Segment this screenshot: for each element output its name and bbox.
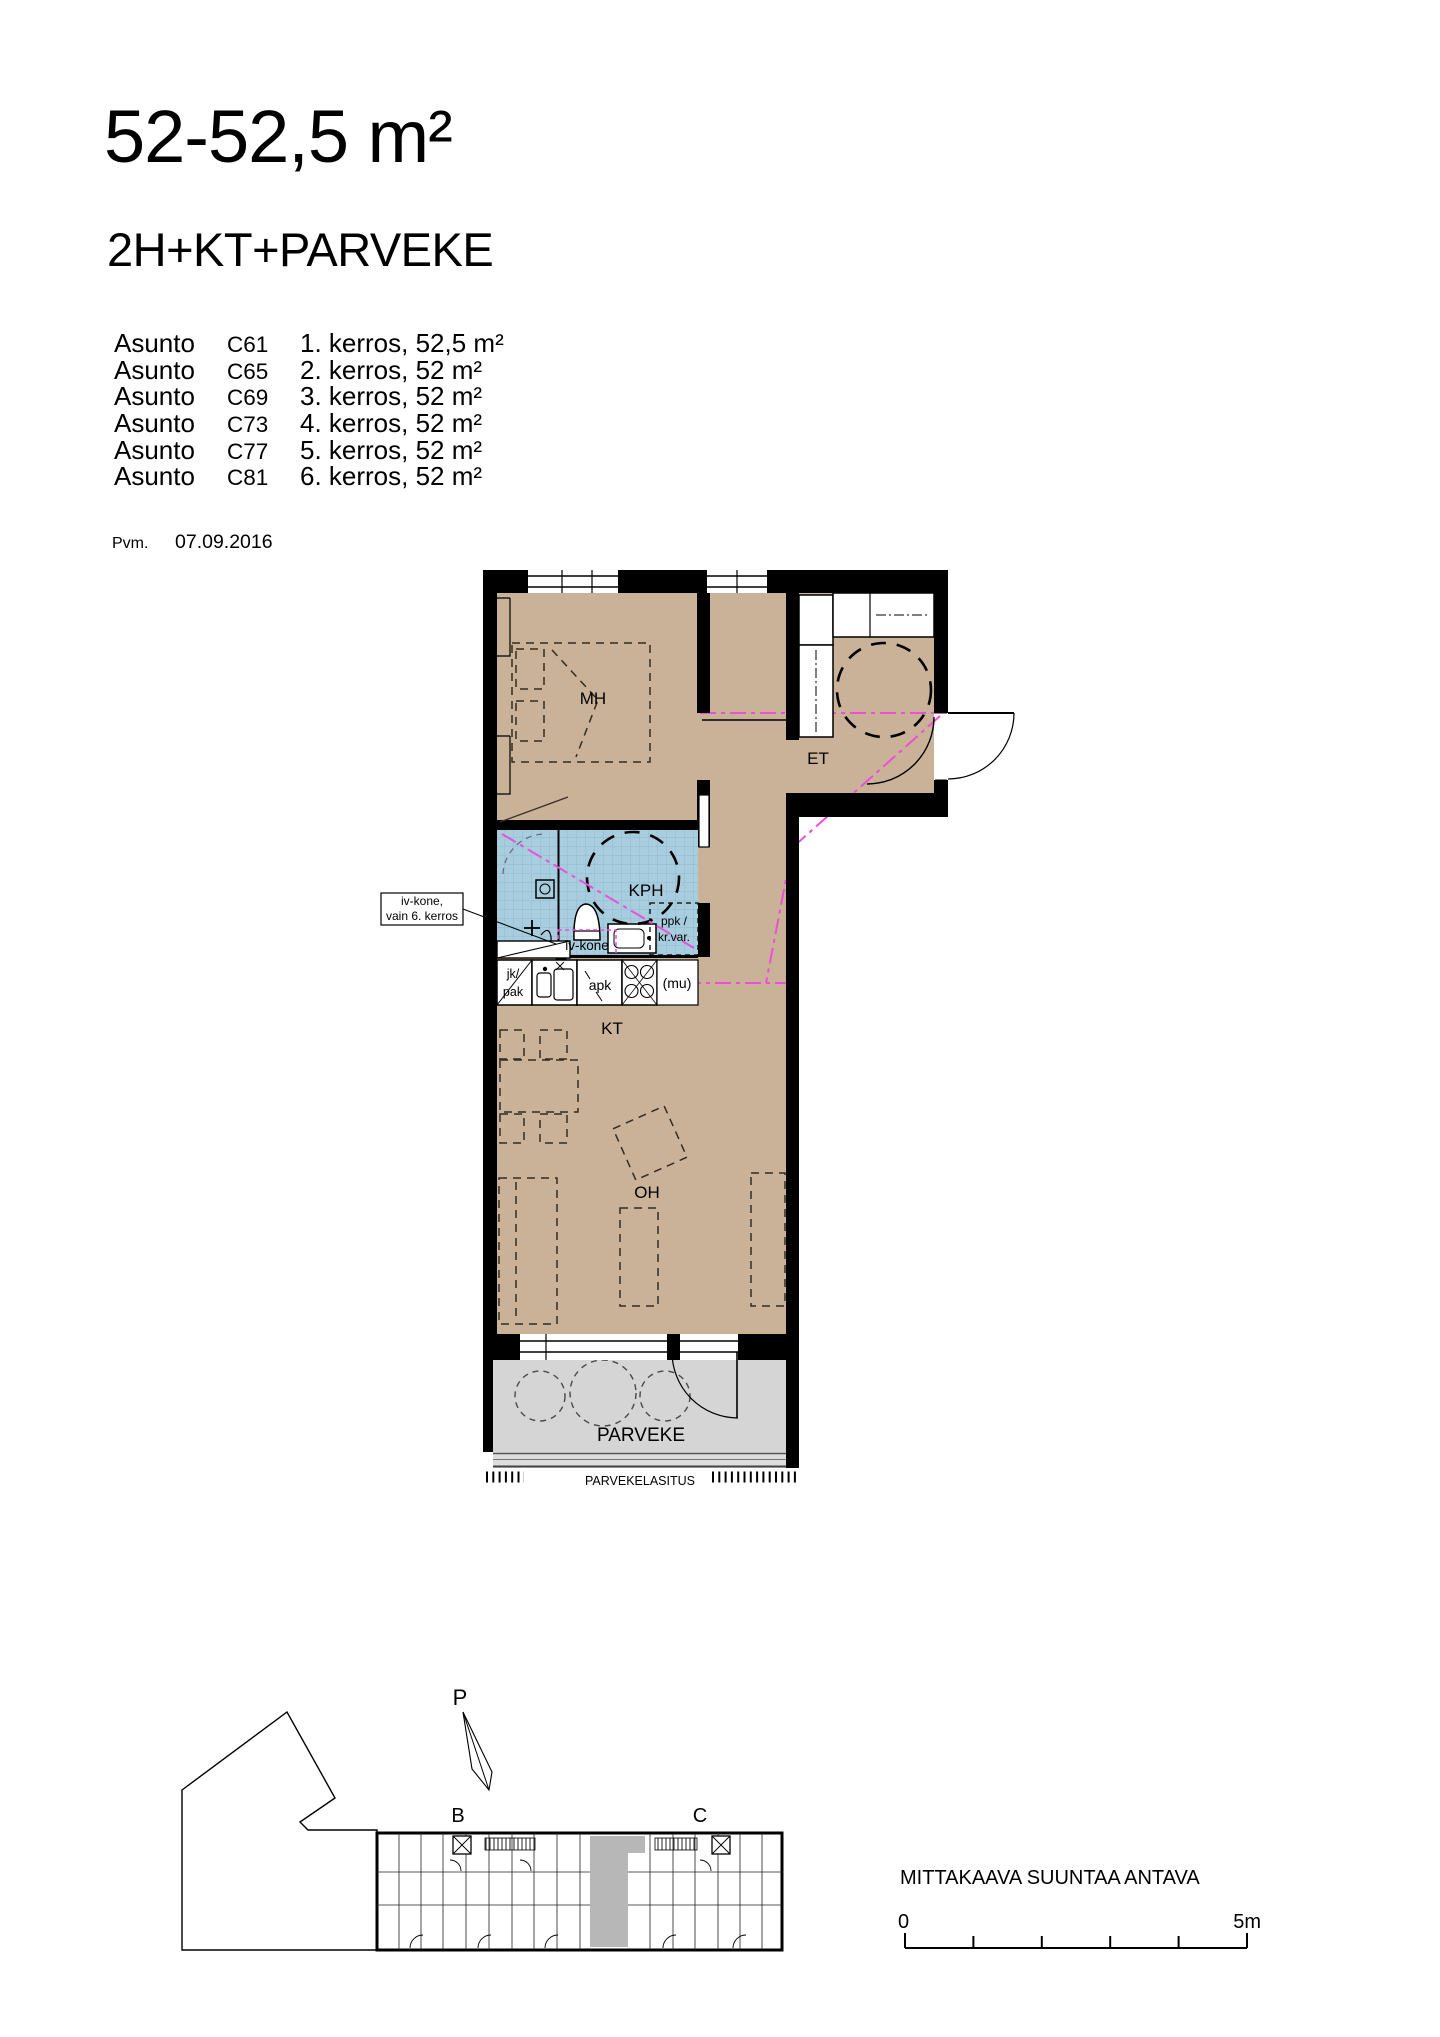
north-arrow [463, 1712, 492, 1790]
callout-text-line1: iv-kone, [401, 894, 443, 908]
room-label-et: ET [807, 749, 829, 768]
washer-label-line1: ppk / [661, 914, 688, 928]
north-label: P [453, 1685, 468, 1710]
sink-icon [608, 924, 656, 953]
balcony [493, 1360, 799, 1468]
drawing-canvas: iv-kone, vain 6. kerros MH ET KPH KT OH … [0, 0, 1440, 2037]
site-boundary [182, 1712, 377, 1950]
floor-plan: iv-kone, vain 6. kerros MH ET KPH KT OH … [381, 570, 1014, 1488]
stove [622, 960, 657, 1005]
grille-strip [655, 1838, 697, 1850]
iv-kone-label: iv-kone [565, 938, 609, 953]
dishwasher-label: apk [589, 977, 613, 993]
grille-strip [485, 1838, 535, 1850]
bathroom-door-leaf [699, 795, 709, 847]
stairwell-c-label: C [693, 1805, 707, 1827]
window-mh [528, 570, 618, 593]
room-label-parveke: PARVEKE [597, 1425, 685, 1446]
kitchen-sink [532, 960, 577, 1005]
fridge-label-line1: jk/ [506, 967, 520, 981]
scale-five-label: 5m [1233, 1911, 1261, 1933]
window-hall [707, 570, 767, 593]
reserved-appliance-label: (mu) [663, 975, 692, 991]
room-label-kt: KT [601, 1019, 623, 1038]
floorplan-document: 52-52,5 m² 2H+KT+PARVEKE AsuntoC611. ker… [0, 0, 1440, 2037]
glazing-label: PARVEKELASITUS [585, 1474, 695, 1488]
washer-label-line2: kr.var. [658, 930, 690, 944]
room-label-mh: MH [580, 689, 606, 708]
window-oh [520, 1334, 667, 1360]
balcony-door-glass [680, 1334, 738, 1360]
scale-bar: MITTAKAAVA SUUNTAA ANTAVA 0 5m [898, 1867, 1261, 1948]
room-label-kph: KPH [629, 881, 664, 900]
scale-note: MITTAKAAVA SUUNTAA ANTAVA [900, 1867, 1200, 1889]
site-plan: P B C MITTAKAAVA SUUNTAA ANTAVA 0 5m [182, 1685, 1261, 1950]
highlighted-unit-notch [628, 1836, 645, 1853]
fridge-label-line2: pak [503, 985, 524, 999]
stairwell-b-label: B [451, 1805, 464, 1827]
callout-text-line2: vain 6. kerros [386, 909, 458, 923]
highlighted-unit [590, 1836, 628, 1947]
room-label-oh: OH [634, 1183, 660, 1202]
scale-zero-label: 0 [898, 1911, 909, 1933]
